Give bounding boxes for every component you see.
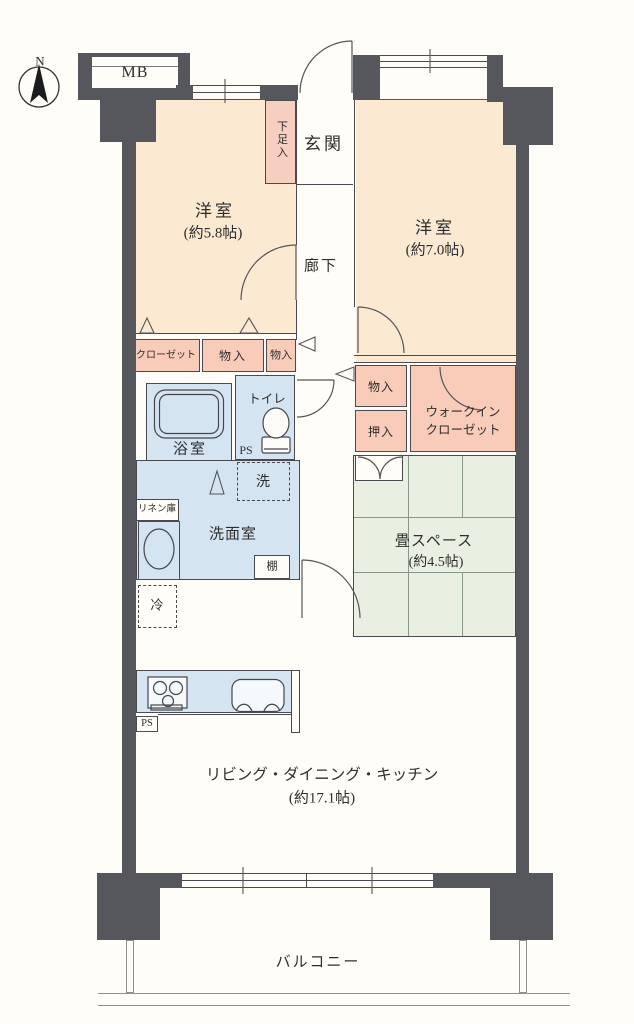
bedroom2-label: 洋室 [415, 220, 455, 237]
washroom-label: 洗面室 [209, 528, 257, 543]
pillar-bottom-left [97, 873, 160, 940]
tatami-size-label: (約4.5帖) [409, 556, 464, 570]
balcony-label: バルコニー [276, 956, 361, 971]
entrance-step-line [297, 184, 353, 185]
kitchen-counter [136, 670, 293, 713]
window-mullion [306, 873, 307, 888]
oshiire-label: 押入 [368, 426, 394, 438]
balcony-edge-line [98, 993, 570, 994]
linen-label: リネン庫 [138, 505, 176, 515]
wall-top-right-block [503, 87, 553, 145]
wic-label-line2: クローゼット [425, 424, 500, 437]
tatami-door-box [355, 455, 403, 481]
balcony-edge-line [98, 1005, 570, 1006]
wall-bottom [433, 873, 490, 888]
wall-line [354, 355, 516, 356]
wall-top-left [100, 100, 156, 142]
pipe-space-label-upper: PS [239, 444, 252, 456]
shoe-cabinet-label: 下足入 [276, 121, 287, 160]
wall-line [354, 362, 516, 363]
closet-label: クローゼット [136, 351, 196, 361]
tatami-label: 畳スペース [395, 535, 473, 550]
window-top-left [193, 85, 260, 100]
balcony-divider-left [126, 940, 134, 993]
wic-label-line1: ウォークイン [425, 406, 500, 419]
vanity-box [138, 521, 180, 580]
tatami-grid-line [354, 572, 515, 573]
storage-label-b: 物入 [270, 351, 292, 362]
tatami-grid-line [462, 572, 463, 636]
balcony-divider-right [519, 940, 527, 993]
wall-top-right [487, 55, 503, 102]
corridor-label: 廊下 [304, 260, 338, 275]
laundry-label: 洗 [256, 476, 270, 490]
kitchen-counter-return [291, 670, 300, 733]
bath-label: 浴室 [173, 443, 207, 458]
pillar-bottom-right [490, 873, 553, 940]
bedroom1-size-label: (約5.8帖) [184, 227, 243, 242]
toilet-label: トイレ [248, 393, 286, 406]
kitchen-counter-edge [158, 714, 292, 715]
storage-label-a: 物入 [219, 350, 247, 362]
ldk-size-label: (約17.1帖) [289, 792, 355, 807]
bedroom1-label: 洋室 [195, 203, 235, 220]
tatami-grid-line [354, 517, 515, 518]
wall-line [354, 100, 355, 307]
compass-north-label: N [35, 55, 44, 68]
wall-right [516, 145, 529, 908]
bedroom2-size-label: (約7.0帖) [406, 244, 465, 259]
meter-box-label: MB [122, 65, 149, 81]
window-balcony [182, 873, 433, 888]
window-top-right [380, 55, 487, 68]
entrance-label: 玄関 [304, 136, 344, 153]
door-flag-icon [336, 367, 354, 381]
wall-line [136, 333, 296, 334]
wall-bottom [160, 873, 182, 888]
entrance-door-arc [300, 41, 352, 93]
storage-label-c: 物入 [368, 381, 394, 393]
door-flag-icon [299, 337, 315, 351]
toilet-door-arc [297, 380, 334, 417]
ldk-door-arc [302, 560, 360, 618]
tatami-grid-line [462, 456, 463, 517]
wall-entrance [353, 55, 380, 100]
window-bay [373, 67, 490, 100]
shelf-label: 棚 [267, 562, 278, 573]
pipe-space-label-lower: PS [141, 719, 153, 730]
ldk-label: リビング・ダイニング・キッチン [206, 767, 439, 783]
wall-top [260, 85, 298, 100]
wall-left [122, 142, 136, 908]
compass-icon [19, 64, 59, 107]
fridge-label: 冷 [150, 599, 163, 612]
wall-top [176, 85, 194, 100]
wall-line [296, 300, 297, 340]
wall-line [296, 100, 297, 245]
